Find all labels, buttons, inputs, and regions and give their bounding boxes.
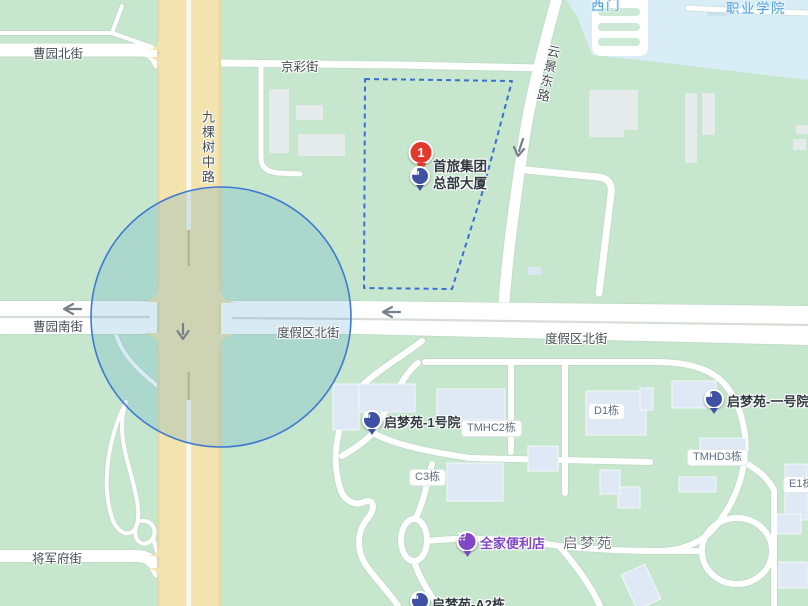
building-label-c3: C3栋 [409,469,446,486]
qmy-a2-pin[interactable] [410,591,430,606]
pin-tail [416,185,424,195]
qmy-no1-pin[interactable] [704,389,724,418]
building-icon [410,591,419,600]
building-label-d1: D1栋 [588,403,625,420]
selection-radius-circle [91,187,351,447]
shopping-cart-icon [457,531,468,542]
campus-parking [592,0,648,56]
result-marker-badge: 1 [417,145,424,160]
building-icon [410,166,420,176]
building-label-tmhd3: TMHD3栋 [687,449,748,466]
pin-tail [463,551,471,561]
building-icon [362,410,371,419]
pin-tail [368,429,376,439]
pin-tail [710,408,718,418]
building-label-tmhc2: TMHC2栋 [461,420,522,437]
map-canvas[interactable]: 曹园北街 京彩街 九棵树中路 云景东路 曹园南街 度假区北街 度假区北街 将军府… [0,0,808,606]
building-icon [704,389,713,398]
hq-poi-pin[interactable] [410,166,430,195]
familymart-pin[interactable] [457,531,478,561]
map-layer [0,0,808,606]
qmy-court1-pin[interactable] [362,410,382,439]
building-label-e1: E1栋 [783,476,808,493]
